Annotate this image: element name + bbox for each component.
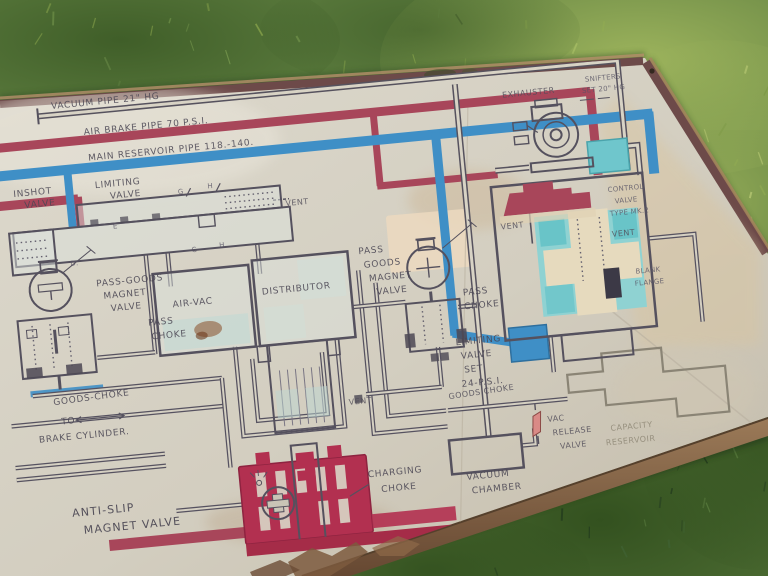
port-letter-d: D. [70, 259, 79, 268]
air-vac-unit [153, 265, 256, 356]
port-letter-g: G [177, 188, 183, 197]
manifold-body [238, 455, 373, 545]
port-letter-g2: G [191, 246, 197, 255]
port-letter-h2: H [219, 241, 225, 249]
diagram-photo: VACUUM PIPE 21" HG AIR BRAKE PIPE 70 P.S… [0, 0, 768, 576]
svg-text:SET: SET [464, 364, 484, 376]
teal-fitting-block [587, 138, 630, 174]
corner-screw [649, 68, 654, 73]
port-letter-h: H [207, 182, 213, 190]
photo-scene: VACUUM PIPE 21" HG AIR BRAKE PIPE 70 P.S… [0, 0, 768, 576]
label-vac-release-valve: VAC [547, 413, 565, 424]
distributor-unit [252, 251, 356, 346]
label-to-brake-cylinder: TO [60, 416, 76, 427]
port-letter-e: E [112, 222, 117, 230]
blue-elbow-block [508, 325, 549, 362]
blank-flange-block [603, 267, 622, 298]
